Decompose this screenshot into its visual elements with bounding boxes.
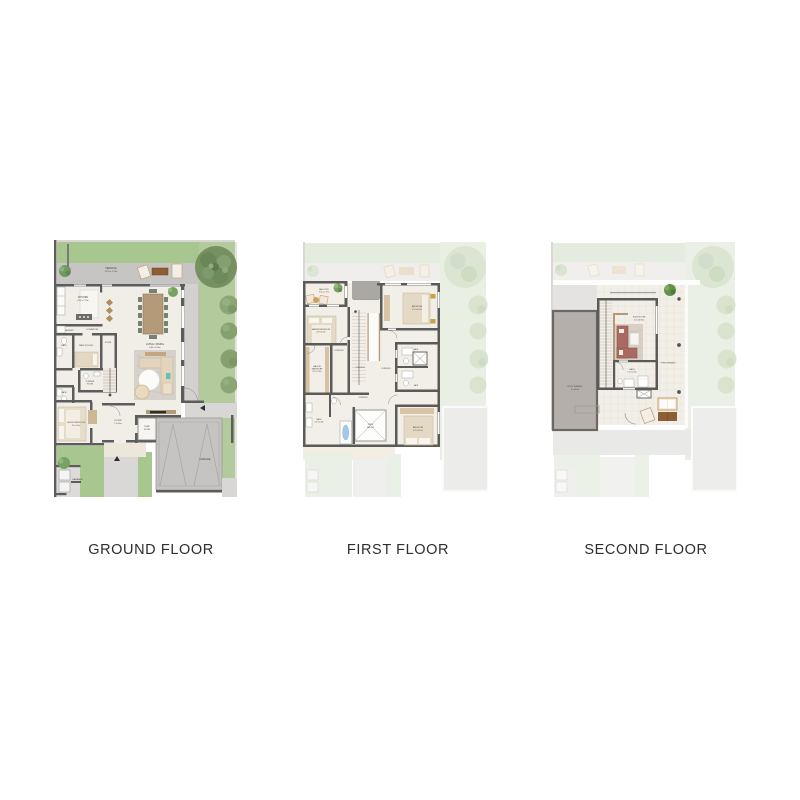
svg-text:3.05 x 1.77m: 3.05 x 1.77m xyxy=(319,292,329,294)
svg-text:FOYER: FOYER xyxy=(115,420,122,422)
svg-text:BEDROOM: BEDROOM xyxy=(412,306,423,308)
svg-text:CORRIDOR: CORRIDOR xyxy=(86,329,98,331)
svg-text:4.20 x 2.75m: 4.20 x 2.75m xyxy=(78,300,89,302)
svg-text:8.65 x 5.05m: 8.65 x 5.05m xyxy=(150,347,161,349)
svg-text:KITCHEN: KITCHEN xyxy=(78,297,88,299)
svg-text:GUEST BEDROOM: GUEST BEDROOM xyxy=(67,422,85,424)
svg-text:OPEN TERRACE: OPEN TERRACE xyxy=(661,362,677,365)
svg-text:ROOM: ROOM xyxy=(144,429,150,431)
svg-text:4.15 x 3.07m: 4.15 x 3.07m xyxy=(413,430,423,432)
svg-text:3.8 x 3.9m: 3.8 x 3.9m xyxy=(72,425,81,427)
svg-text:MAID'S ROOM: MAID'S ROOM xyxy=(79,344,93,347)
svg-text:BATH: BATH xyxy=(62,344,68,347)
svg-text:BELOW: BELOW xyxy=(367,427,374,429)
svg-text:STORE: STORE xyxy=(105,342,112,344)
svg-text:OPEN: OPEN xyxy=(368,424,374,426)
svg-text:BATH: BATH xyxy=(630,368,636,371)
svg-text:3.47 x 2.45m: 3.47 x 2.45m xyxy=(314,422,324,424)
svg-text:LAUNDRY: LAUNDRY xyxy=(65,329,75,332)
svg-text:WALK-IN: WALK-IN xyxy=(313,365,321,368)
svg-text:2.55 x 1.45m: 2.55 x 1.45m xyxy=(627,372,637,374)
svg-text:CORRIDOR: CORRIDOR xyxy=(334,350,344,352)
svg-text:ROOM: ROOM xyxy=(87,384,93,386)
svg-text:CORRIDOR: CORRIDOR xyxy=(381,368,391,370)
svg-text:GARAGE: GARAGE xyxy=(199,457,210,461)
svg-text:5.13 x 3.95m: 5.13 x 3.95m xyxy=(634,319,644,321)
svg-text:2.7x2.4m: 2.7x2.4m xyxy=(114,423,122,425)
svg-text:3.67 x 3.05m: 3.67 x 3.05m xyxy=(316,332,326,334)
svg-text:CORRIDOR: CORRIDOR xyxy=(358,397,368,399)
svg-text:WARDROBE: WARDROBE xyxy=(312,368,323,371)
svg-text:4.15 x 3.07m: 4.15 x 3.07m xyxy=(412,309,422,311)
svg-text:BEDROOM: BEDROOM xyxy=(413,427,424,429)
svg-text:3.07 x 2.37m: 3.07 x 2.37m xyxy=(312,371,322,373)
svg-text:PUMP: PUMP xyxy=(144,426,150,428)
svg-text:10.35 x 2.75m: 10.35 x 2.75m xyxy=(105,271,118,273)
svg-text:LIVING / DINING: LIVING / DINING xyxy=(146,343,164,346)
svg-text:MASTER BEDROOM: MASTER BEDROOM xyxy=(312,328,331,331)
svg-text:CORRIDOR: CORRIDOR xyxy=(355,367,365,369)
svg-text:GARBAGE: GARBAGE xyxy=(72,478,83,481)
svg-text:FLEX ROOM: FLEX ROOM xyxy=(633,317,646,319)
svg-text:BATH: BATH xyxy=(62,391,67,394)
svg-text:BATH: BATH xyxy=(317,418,322,421)
svg-text:ROOF TERRACE: ROOF TERRACE xyxy=(568,385,584,388)
svg-text:TERRACE: TERRACE xyxy=(105,267,117,270)
svg-text:9.0 x 4.0m: 9.0 x 4.0m xyxy=(571,389,579,391)
